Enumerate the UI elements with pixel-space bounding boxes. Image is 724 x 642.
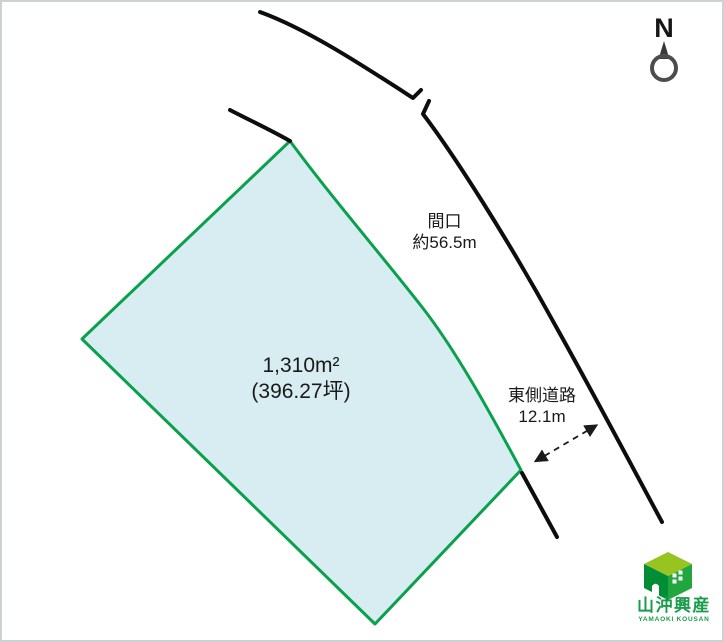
- road-outer-upper-line: [260, 12, 421, 98]
- parcel-area-tsubo: (396.27坪): [201, 379, 401, 405]
- company-logo-cube-icon: [644, 552, 692, 600]
- company-name: 山沖興産: [614, 596, 724, 615]
- frontage-value: 約56.5m: [387, 232, 502, 253]
- parcel-area-label: 1,310m² (396.27坪): [201, 353, 401, 405]
- site-plan-drawing: [2, 2, 724, 642]
- company-logo-wordmark: 山沖興産 YAMAOKI KOUSAN: [614, 596, 724, 624]
- parcel-area-sqm: 1,310m²: [201, 353, 401, 379]
- compass-north-label: N: [647, 14, 681, 42]
- road-inner-lower-line: [522, 473, 557, 537]
- east-road-title: 東側道路: [480, 385, 604, 406]
- east-road-label: 東側道路 12.1m: [480, 385, 604, 427]
- frontage-label: 間口 約56.5m: [387, 211, 502, 253]
- road-width-arrow: [535, 425, 597, 462]
- east-road-value: 12.1m: [480, 406, 604, 427]
- road-inner-upper-line: [230, 110, 290, 141]
- company-name-romaji: YAMAOKI KOUSAN: [614, 616, 724, 624]
- frontage-title: 間口: [387, 211, 502, 232]
- site-plan-figure: N 間口 約56.5m 1,310m² (396.27坪) 東側道路 12.1m…: [0, 0, 724, 642]
- compass-ring-icon: [652, 56, 676, 80]
